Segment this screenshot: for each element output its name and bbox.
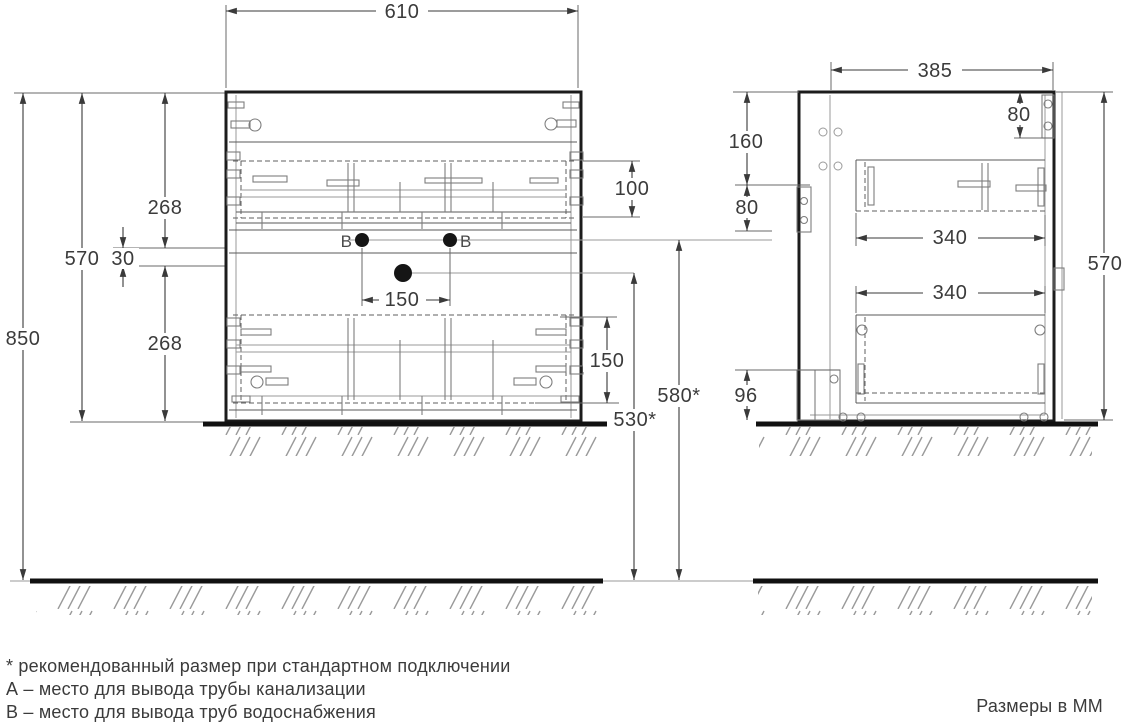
dim-plate-top-offset-label: 160 [729,131,764,153]
dim-plinth-height: 96 [726,370,840,420]
dim-plate-top-offset: 160 [723,92,810,185]
dim-supply-height-label: 580* [657,385,700,407]
mounting-datum-side [756,424,1098,456]
dim-drain-height-label: 530* [613,409,656,431]
dim-upper-offset: 268 [141,93,189,248]
water-supply-hole-b-right [443,233,457,247]
cam-fitting-icon [251,376,263,388]
dim-supply-holes-spacing-label: 150 [385,289,420,311]
dim-upper-drawer-depth: 340 [856,213,1045,249]
drain-hole-a [394,264,412,282]
dim-bracket-height-label: 80 [1007,104,1030,126]
bottom-bracket [797,370,840,420]
side-lower-drawer [856,315,1045,403]
cam-fitting-icon [545,118,557,130]
dim-upper-drawer-depth-label: 340 [933,227,968,249]
dim-plate-height: 80 [726,185,772,231]
dim-total-height-label: 850 [6,328,41,350]
front-cabinet-outline [226,92,581,421]
dim-lower-drawer-depth-label: 340 [933,282,968,304]
screw-hole-icon [801,198,808,205]
side-upper-drawer [856,160,1046,211]
dim-side-height-label: 570 [1088,253,1123,275]
hatch-front-datum [206,427,600,456]
dim-lower-drawer-depth: 340 [856,282,1045,313]
vanity-dimension-drawing: В В 610 850 570 30 [0,0,1125,723]
hole-label-b-right: В [460,232,471,251]
pipe-outlet-holes: В В [341,232,772,282]
front-lower-drawer-mechanism [227,315,583,415]
hatch-floor-right [758,586,1092,615]
cam-fitting-icon [1035,325,1045,335]
dim-side-height: 570 [1056,92,1125,420]
dim-lower-offset: 268 [141,266,189,421]
units-label: Размеры в ММ [976,696,1103,716]
dim-upper-offset-label: 268 [148,197,183,219]
dim-upper-drawer-clearance: 100 [583,161,658,217]
hole-label-b-left: В [341,232,352,251]
dim-total-height: 850 [1,93,46,580]
front-upper-drawer-mechanism [227,102,583,229]
mounting-datum-front [203,424,607,456]
wall-bracket [1042,95,1054,138]
dim-drain-height: 530* [607,273,664,580]
dim-lower-offset-label: 268 [148,333,183,355]
note-recommended: * рекомендованный размер при стандартном… [6,656,511,676]
dim-front-height: 570 [59,93,105,421]
cam-fitting-icon [540,376,552,388]
dim-holes-gap: 30 [108,227,139,287]
floor-line [10,581,1098,615]
screw-hole-icon [801,217,808,224]
footer-notes: * рекомендованный размер при стандартном… [6,656,1103,722]
dim-lower-drawer-clearance: 150 [535,317,631,403]
front-dimensions: 610 850 570 30 268 [1,0,708,580]
note-a: А – место для вывода трубы канализации [6,679,366,699]
dim-plinth-height-label: 96 [734,385,757,407]
dim-depth-label: 385 [918,60,953,82]
side-view [797,92,1064,421]
dim-front-width-label: 610 [385,1,420,23]
screw-hole-icon [830,375,838,383]
water-supply-hole-b-left [355,233,369,247]
dim-holes-gap-label: 30 [111,248,134,270]
technical-drawing-page: В В 610 850 570 30 [0,0,1125,723]
note-b: В – место для вывода труб водоснабжения [6,702,376,722]
dim-plate-height-label: 80 [735,197,758,219]
hatch-floor-left [36,586,597,615]
hatch-side-datum [759,427,1092,456]
dim-upper-drawer-clearance-label: 100 [615,178,650,200]
side-dimensions: 385 160 80 80 340 [723,59,1125,420]
dim-front-height-label: 570 [65,248,100,270]
dim-depth: 385 [831,59,1053,90]
dim-lower-drawer-clearance-label: 150 [590,350,625,372]
dim-front-width: 610 [226,0,578,88]
cam-fitting-icon [249,119,261,131]
side-cabinet-outline [799,92,1054,421]
